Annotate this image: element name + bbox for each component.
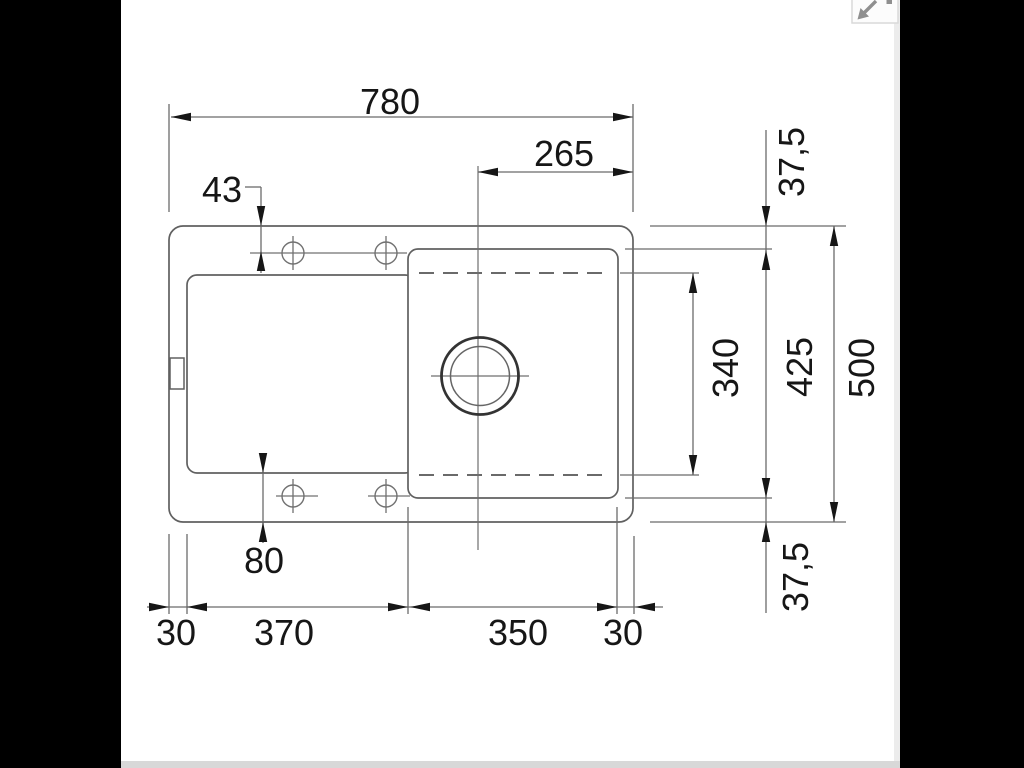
dim-label-bottom-offset: 80	[244, 540, 284, 581]
dim-label-rim-left: 30	[156, 612, 196, 653]
dim-label-tap-hole-offset: 43	[202, 169, 242, 210]
dim-label-rim-top: 37,5	[771, 127, 812, 197]
resize-arrow-icon	[887, 0, 893, 4]
image-viewer: 780 265 43 80 30 370 350 30 37,5 340 425…	[0, 0, 1024, 768]
bowl-outline	[408, 249, 618, 498]
right-edge-strip	[894, 0, 900, 762]
overflow-notch	[170, 358, 184, 389]
dim-label-rim-right: 30	[603, 612, 643, 653]
dim-label-drainboard-width: 370	[254, 612, 314, 653]
expand-button[interactable]	[852, 0, 898, 23]
letterbox-left	[0, 0, 121, 768]
letterbox-right	[900, 0, 1024, 768]
dim-label-inner-depth: 340	[705, 338, 746, 398]
dim-label-bowl-depth: 425	[779, 337, 820, 397]
horizontal-scrollbar[interactable]	[121, 761, 900, 768]
dim-label-drain-offset: 265	[534, 133, 594, 174]
dim-label-overall-width: 780	[360, 81, 420, 122]
dim-label-bowl-width: 350	[488, 612, 548, 653]
dim-label-overall-depth: 500	[841, 338, 882, 398]
dim-label-rim-bottom: 37,5	[775, 542, 816, 612]
